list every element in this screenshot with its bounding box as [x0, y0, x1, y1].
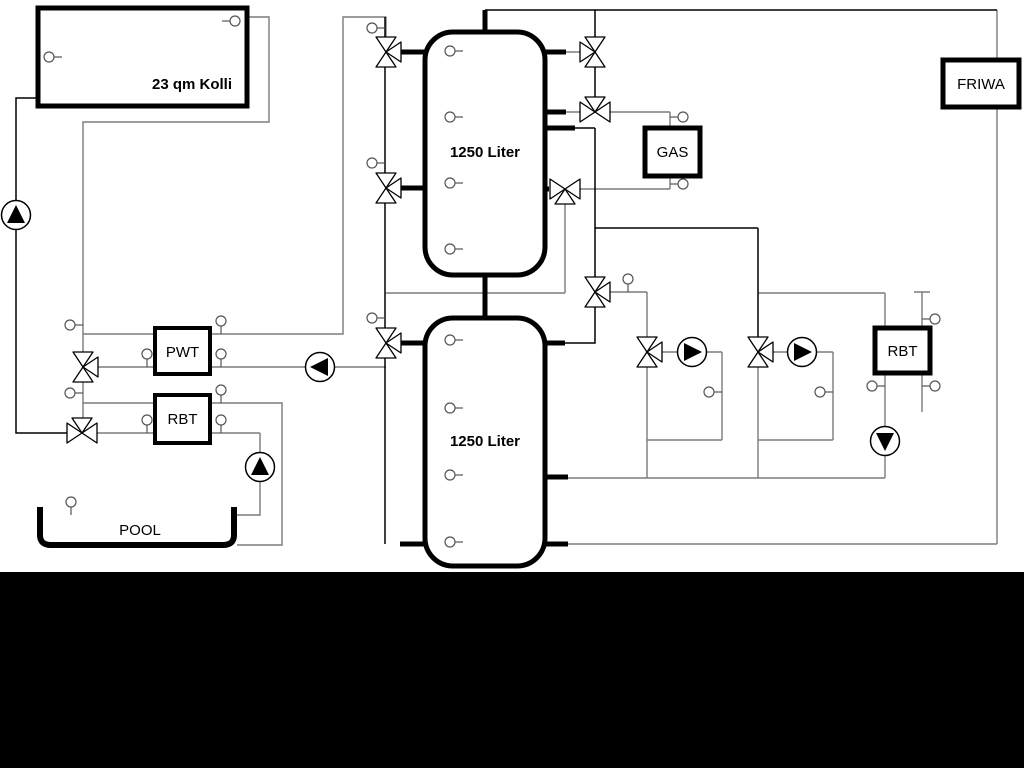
gas-label: GAS	[657, 144, 689, 161]
heating-schematic: 23 qm Kolli 1250 Liter 1250 Liter PWT RB…	[0, 0, 1024, 768]
tank-top-label: 1250 Liter	[450, 144, 520, 161]
rbt-pool-label: RBT	[168, 411, 198, 428]
pool-label: POOL	[119, 522, 161, 539]
pwt-label: PWT	[166, 344, 199, 361]
footer-black-band	[0, 572, 1024, 768]
friwa-label: FRIWA	[957, 76, 1005, 93]
rbt-right-label: RBT	[888, 343, 918, 360]
schematic-page: 23 qm Kolli 1250 Liter 1250 Liter PWT RB…	[0, 0, 1024, 768]
tank-bottom-label: 1250 Liter	[450, 433, 520, 450]
collector-label: 23 qm Kolli	[152, 76, 232, 93]
